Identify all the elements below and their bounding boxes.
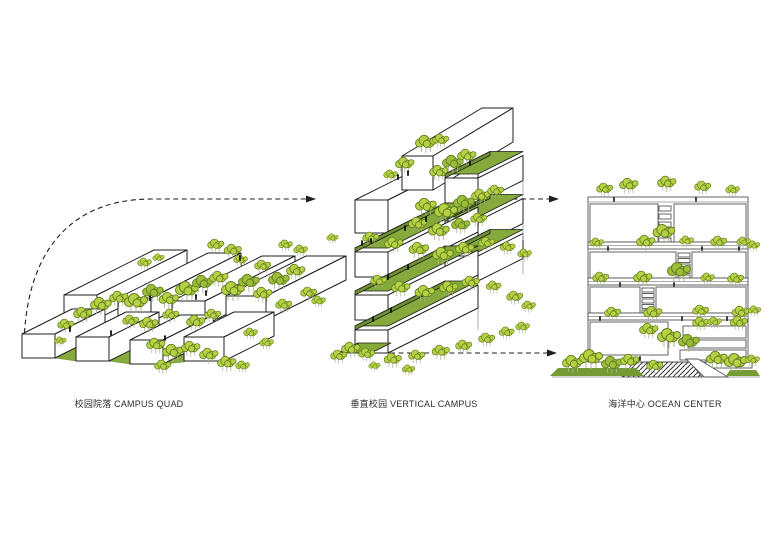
person-icon [205, 290, 207, 296]
person-icon [726, 316, 728, 321]
person-icon [69, 326, 71, 332]
tree-icon [597, 183, 613, 197]
person-icon [681, 316, 683, 321]
person-icon [372, 316, 374, 322]
tree-icon [208, 239, 224, 253]
tree-icon [294, 245, 308, 257]
person-icon [164, 335, 166, 341]
tree-icon [402, 365, 415, 376]
caption-ocean-center: 海洋中心 OCEAN CENTER [608, 397, 721, 410]
tree-icon [748, 306, 761, 317]
person-icon [673, 282, 675, 287]
person-icon [110, 330, 112, 336]
person-icon [397, 174, 399, 180]
person-icon [149, 295, 151, 301]
tree-icon [327, 234, 339, 244]
tree-icon [479, 333, 495, 347]
person-icon [469, 160, 471, 166]
person-icon [390, 307, 392, 313]
tree-icon [369, 362, 381, 372]
tree-icon [312, 296, 326, 308]
person-icon [239, 255, 241, 261]
tree-icon [409, 350, 425, 364]
person-icon [599, 316, 601, 321]
tree-icon [236, 361, 250, 373]
person-icon [370, 238, 372, 244]
caption-campus-quad: 校园院落 CAMPUS QUAD [75, 397, 184, 410]
facade-panel-diagonal [590, 204, 658, 242]
tree-icon [516, 322, 530, 334]
person-icon [613, 197, 615, 202]
tree-icon [580, 350, 603, 370]
person-icon [701, 246, 703, 251]
caption-vertical-campus: 垂直校园 VERTICAL CAMPUS [350, 397, 477, 410]
tree-icon [456, 340, 472, 354]
tree-icon [432, 345, 449, 360]
person-icon [738, 246, 740, 251]
tree-icon [695, 181, 711, 195]
tree-icon [486, 281, 501, 294]
person-icon [407, 264, 409, 270]
tree-icon [384, 353, 401, 368]
diagram-vertical-campus [331, 108, 536, 376]
architectural-concept-diagram: 校园院落 CAMPUS QUAD 垂直校园 VERTICAL CAMPUS 海洋… [0, 0, 780, 552]
tree-icon [726, 185, 740, 197]
tree-icon [658, 176, 676, 192]
arrowhead-icon [306, 196, 316, 203]
person-icon [387, 274, 389, 280]
person-icon [404, 225, 406, 231]
tree-icon [507, 291, 523, 305]
tree-icon [522, 301, 536, 313]
tree-icon [620, 178, 638, 194]
person-icon [425, 216, 427, 222]
tree-icon [499, 327, 514, 340]
arrowhead-icon [547, 350, 557, 357]
person-icon [639, 356, 641, 361]
person-icon [619, 282, 621, 287]
diagram-campus-quad [22, 234, 346, 374]
person-icon [407, 170, 409, 176]
person-icon [361, 240, 363, 246]
person-icon [195, 294, 197, 300]
tree-icon [331, 350, 347, 364]
diagram-ocean-center [550, 176, 761, 377]
tree-icon [279, 240, 293, 252]
arrowhead-icon [549, 196, 559, 203]
facade-panel-sparse-dots [692, 252, 746, 278]
concept-diagram-graphic [0, 0, 780, 552]
person-icon [695, 197, 697, 202]
person-icon [607, 246, 609, 251]
